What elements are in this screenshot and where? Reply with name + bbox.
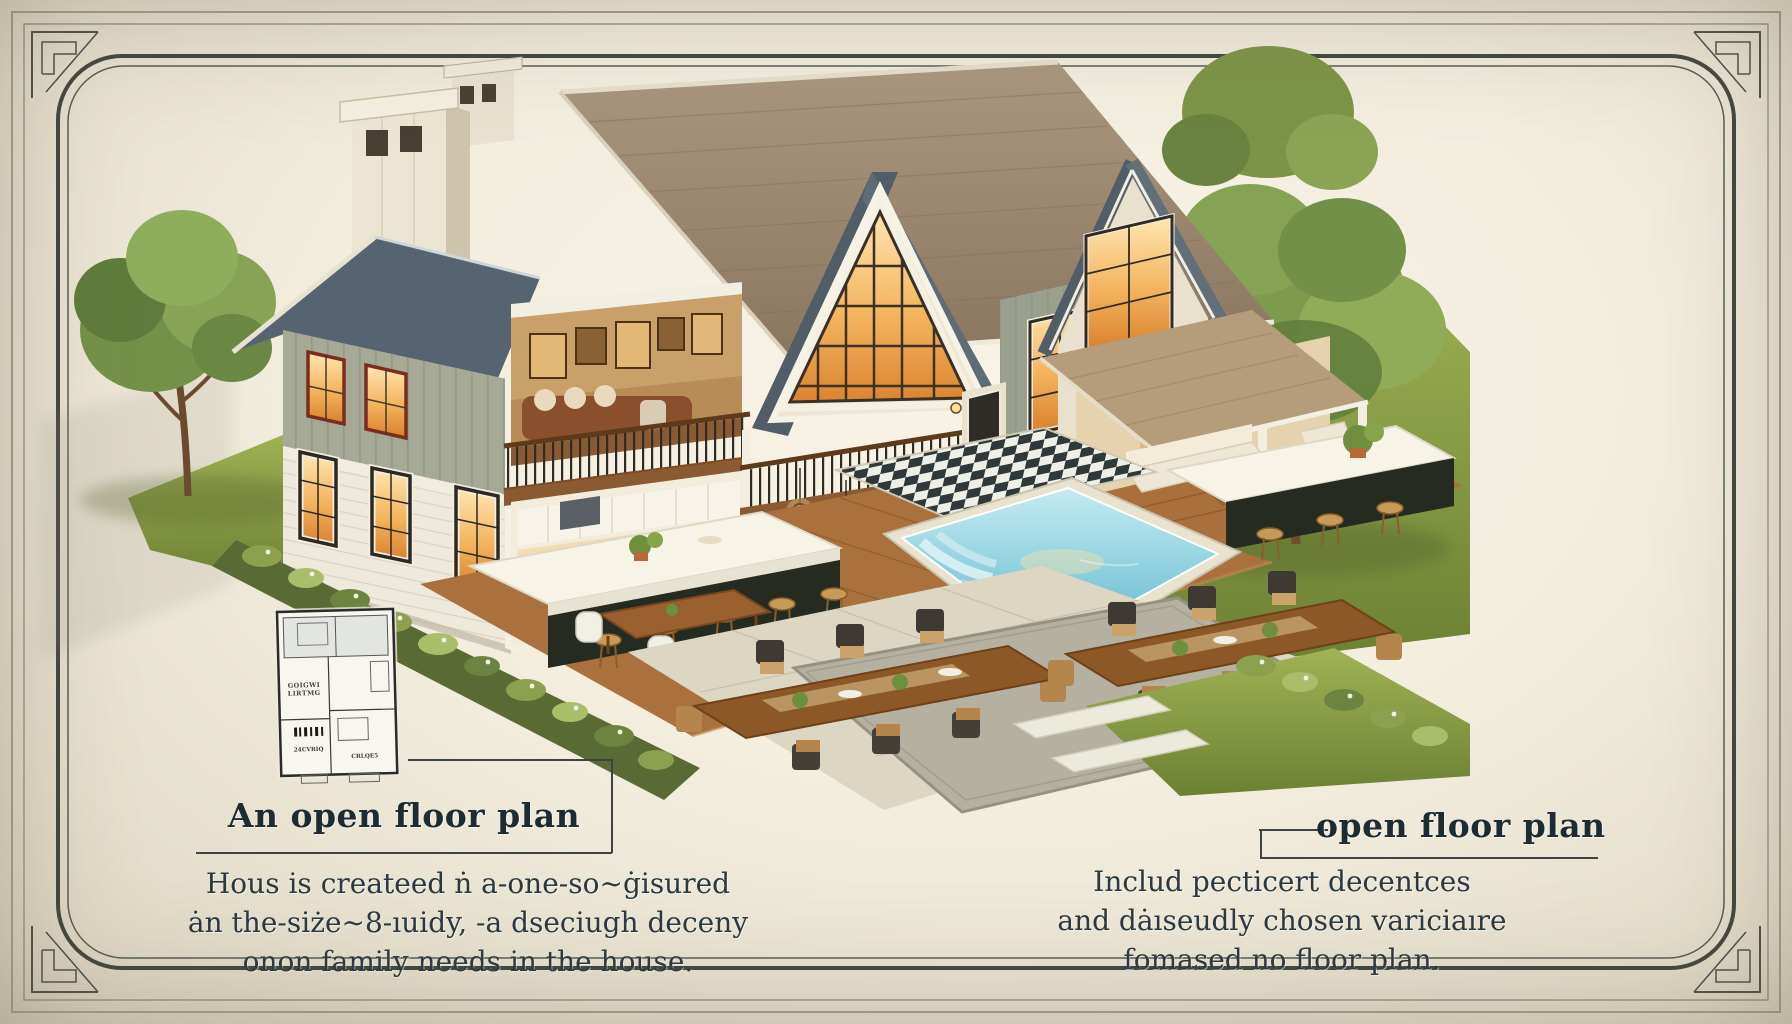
plan-room-label: LIRTMG — [288, 689, 321, 698]
plan-tag-label: CRLQE5 — [351, 753, 378, 760]
floor-plan-inset: GOIGWI LIRTMG 24CVRIQ CRLQE5 — [274, 606, 401, 784]
plan-tag-label: 24CVRIQ — [294, 747, 324, 754]
left-callout-line: onon family needs in the house. — [178, 942, 758, 981]
left-callout-heading: An open floor plan — [196, 796, 612, 835]
lower-window — [372, 468, 410, 562]
right-callout-line: and dȧıseudly chosen variciaıre — [1022, 901, 1542, 940]
right-callout-line: fomased no floor plan. — [1022, 940, 1542, 979]
back-tree — [1162, 46, 1378, 190]
upper-window — [308, 352, 344, 424]
left-callout-line: Hous is createed ṅ a-one-so~ġisured — [178, 864, 758, 903]
right-callout: open floor plan — [1316, 806, 1576, 845]
right-callout-line: Includ pecticert decentces — [1022, 862, 1542, 901]
left-callout: An open floor plan — [196, 796, 612, 835]
right-callout-heading: open floor plan — [1316, 806, 1576, 845]
left-callout-line: ȧn the-siże~8-ıuidy, -a dseciugh deceny — [178, 903, 758, 942]
lower-window — [300, 452, 336, 546]
left-callout-paragraph: Hous is createed ṅ a-one-so~ġisured ȧn t… — [178, 864, 758, 981]
postcard-canvas: GOIGWI LIRTMG 24CVRIQ CRLQE5 An open flo… — [0, 0, 1792, 1024]
upper-window — [366, 365, 406, 438]
right-callout-paragraph: Includ pecticert decentces and dȧıseudly… — [1022, 862, 1542, 979]
